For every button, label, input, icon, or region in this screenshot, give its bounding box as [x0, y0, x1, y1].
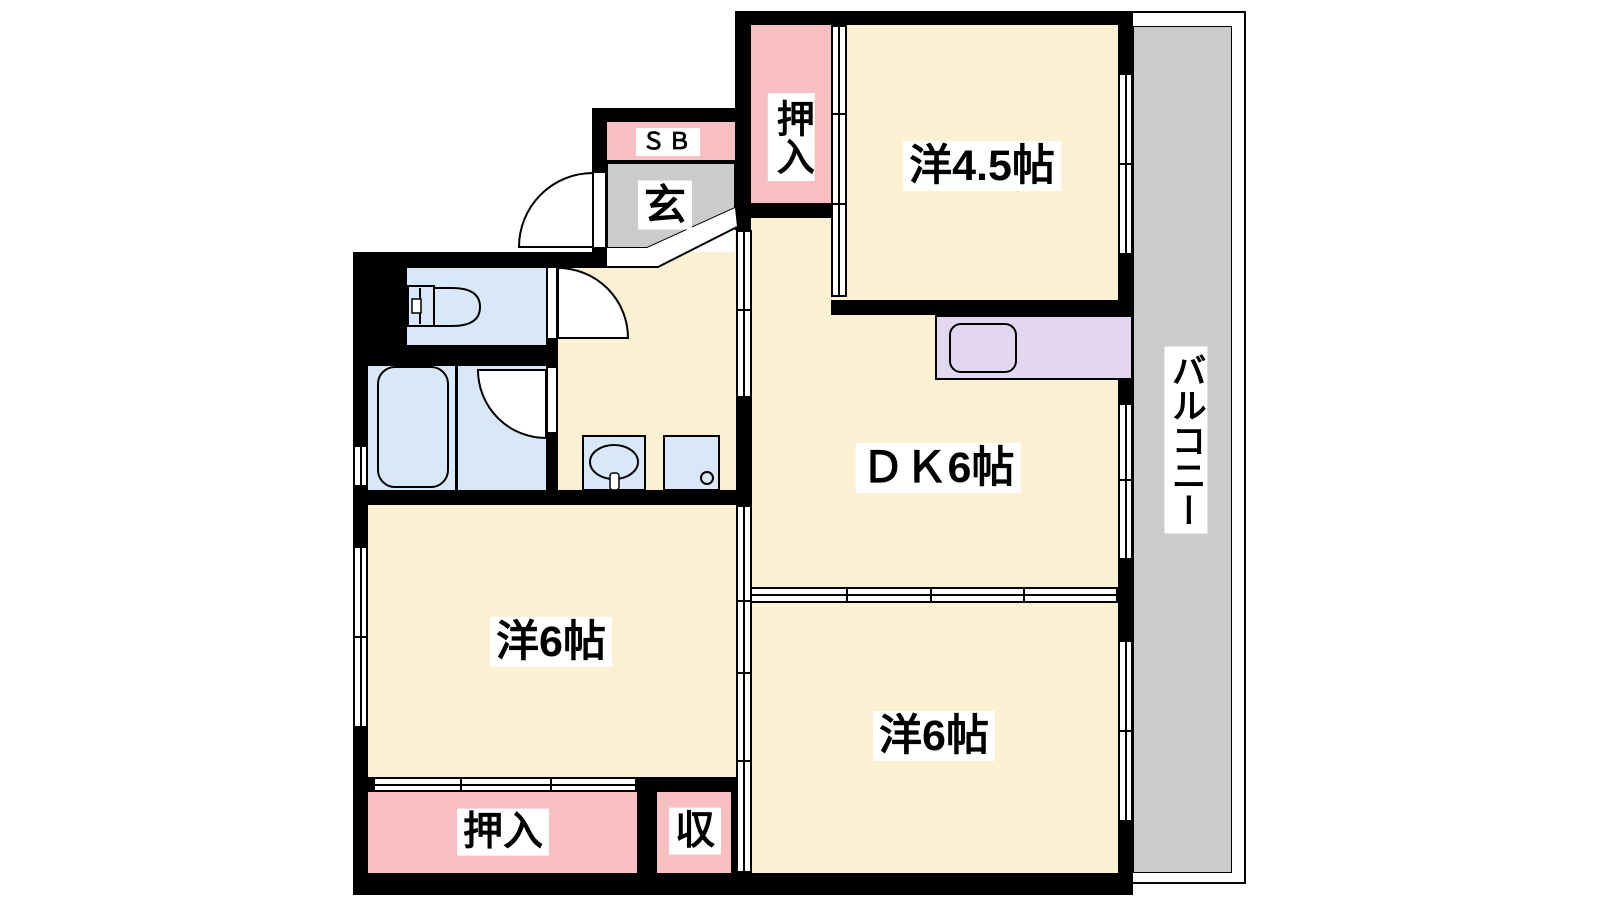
- room-label-western6-left: 洋6帖: [490, 617, 612, 667]
- toilet-door-arc: [558, 268, 628, 338]
- room-label-closet-upper: 押入: [768, 93, 815, 181]
- toilet-handle-icon: [412, 299, 421, 313]
- room-label-western45: 洋4.5帖: [903, 141, 1061, 191]
- room-label-balcony: バルコニー: [1164, 347, 1207, 534]
- bathtub-icon: [378, 367, 448, 487]
- kitchen-sink-icon: [950, 324, 1016, 372]
- washroom-door-arc: [478, 370, 546, 438]
- room-label-shoebox: ＳＢ: [636, 128, 700, 156]
- room-label-western6-right: 洋6帖: [873, 711, 995, 761]
- room-label-dk: ＤＫ6帖: [856, 443, 1021, 493]
- toilet-bowl-icon: [434, 288, 480, 326]
- washbasin-tap-icon: [610, 473, 619, 490]
- room-label-storage: 収: [669, 808, 721, 855]
- room-label-entrance: 玄: [638, 180, 692, 229]
- floorplan: 洋4.5帖 ＤＫ6帖 洋6帖 洋6帖 押入 押入 収 ＳＢ 玄 バルコニー: [0, 0, 1600, 900]
- room-label-closet-lower: 押入: [457, 809, 549, 856]
- entry-door-arc: [519, 173, 593, 247]
- washing-machine-drain-icon: [701, 472, 713, 484]
